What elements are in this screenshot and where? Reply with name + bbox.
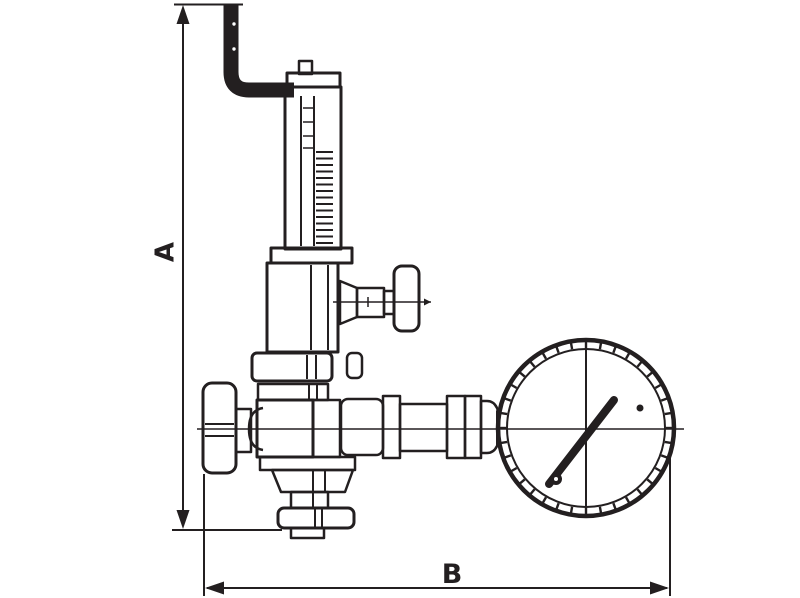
dim-a-arrow-down-icon [177, 510, 190, 529]
hex-nut-upper [252, 353, 332, 381]
gauge-piping [383, 396, 510, 458]
dim-a-arrow-up-icon [177, 5, 190, 24]
dim-b-arrow-right-icon [650, 582, 669, 595]
dim-b-arrow-left-icon [205, 582, 224, 595]
side-boss [347, 353, 362, 378]
pipe-highlight-dot [232, 47, 235, 50]
union-nut-b [465, 396, 481, 458]
dimension-a-label: A [151, 242, 181, 262]
technical-drawing-pressure-reducing-valve: A B [0, 0, 800, 598]
pipe-highlight-dot [232, 22, 235, 25]
inlet-cap [203, 383, 236, 473]
bottom-outlet [260, 457, 355, 538]
body-gauge-boss [341, 399, 383, 455]
union-nut-a [447, 396, 465, 458]
bonnet-top-flange [287, 73, 340, 87]
pressure-gauge [498, 338, 674, 518]
spring-coils [303, 108, 333, 243]
outlet-neck [291, 492, 328, 508]
lever-pipe [231, 5, 294, 90]
bonnet-hex-nuts [252, 353, 362, 400]
dial-dot [637, 405, 644, 412]
t-bar-knob [394, 266, 419, 331]
adjustment-t-handle [333, 266, 431, 331]
dimension-b-label: B [442, 559, 463, 590]
outlet-band [260, 457, 355, 470]
valve-drawing-svg: A B [0, 0, 800, 598]
needle-tail-dot [554, 477, 558, 481]
lever-pipe-elbow [231, 5, 294, 90]
pipe-section [400, 404, 447, 451]
coupling-nut [383, 396, 400, 458]
centerline-arrow-icon [424, 299, 431, 306]
